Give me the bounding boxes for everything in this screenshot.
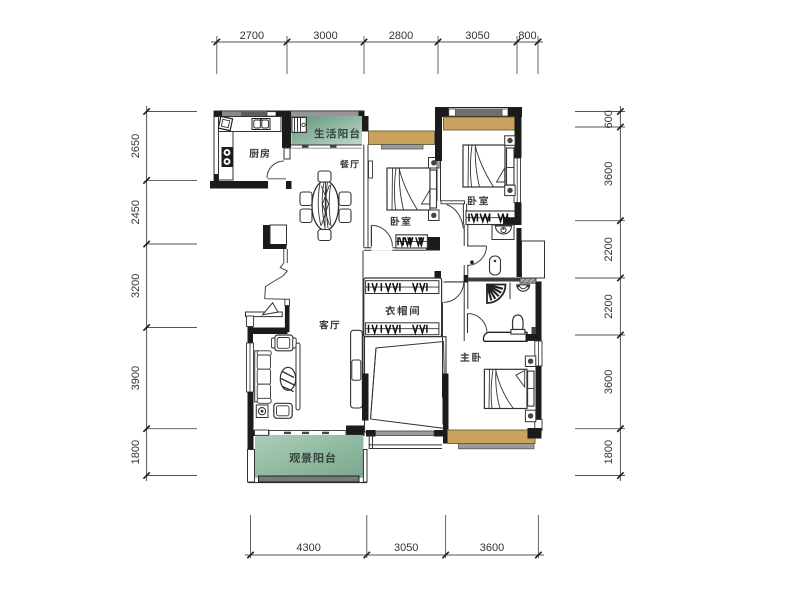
svg-text:3050: 3050	[465, 30, 489, 42]
svg-text:3900: 3900	[130, 366, 142, 390]
svg-text:2200: 2200	[603, 237, 615, 261]
svg-text:3600: 3600	[603, 370, 615, 394]
svg-text:1800: 1800	[603, 440, 615, 464]
svg-text:3050: 3050	[394, 542, 418, 554]
svg-text:2450: 2450	[130, 200, 142, 224]
svg-text:3600: 3600	[480, 542, 504, 554]
svg-text:2700: 2700	[240, 30, 264, 42]
svg-text:2200: 2200	[603, 294, 615, 318]
svg-text:4300: 4300	[296, 542, 320, 554]
svg-text:3600: 3600	[603, 162, 615, 186]
svg-text:2650: 2650	[130, 134, 142, 158]
svg-text:3000: 3000	[313, 30, 337, 42]
svg-text:1800: 1800	[130, 440, 142, 464]
svg-text:600: 600	[603, 110, 615, 128]
svg-text:800: 800	[518, 30, 536, 42]
svg-text:2800: 2800	[389, 30, 413, 42]
svg-text:3200: 3200	[130, 274, 142, 298]
